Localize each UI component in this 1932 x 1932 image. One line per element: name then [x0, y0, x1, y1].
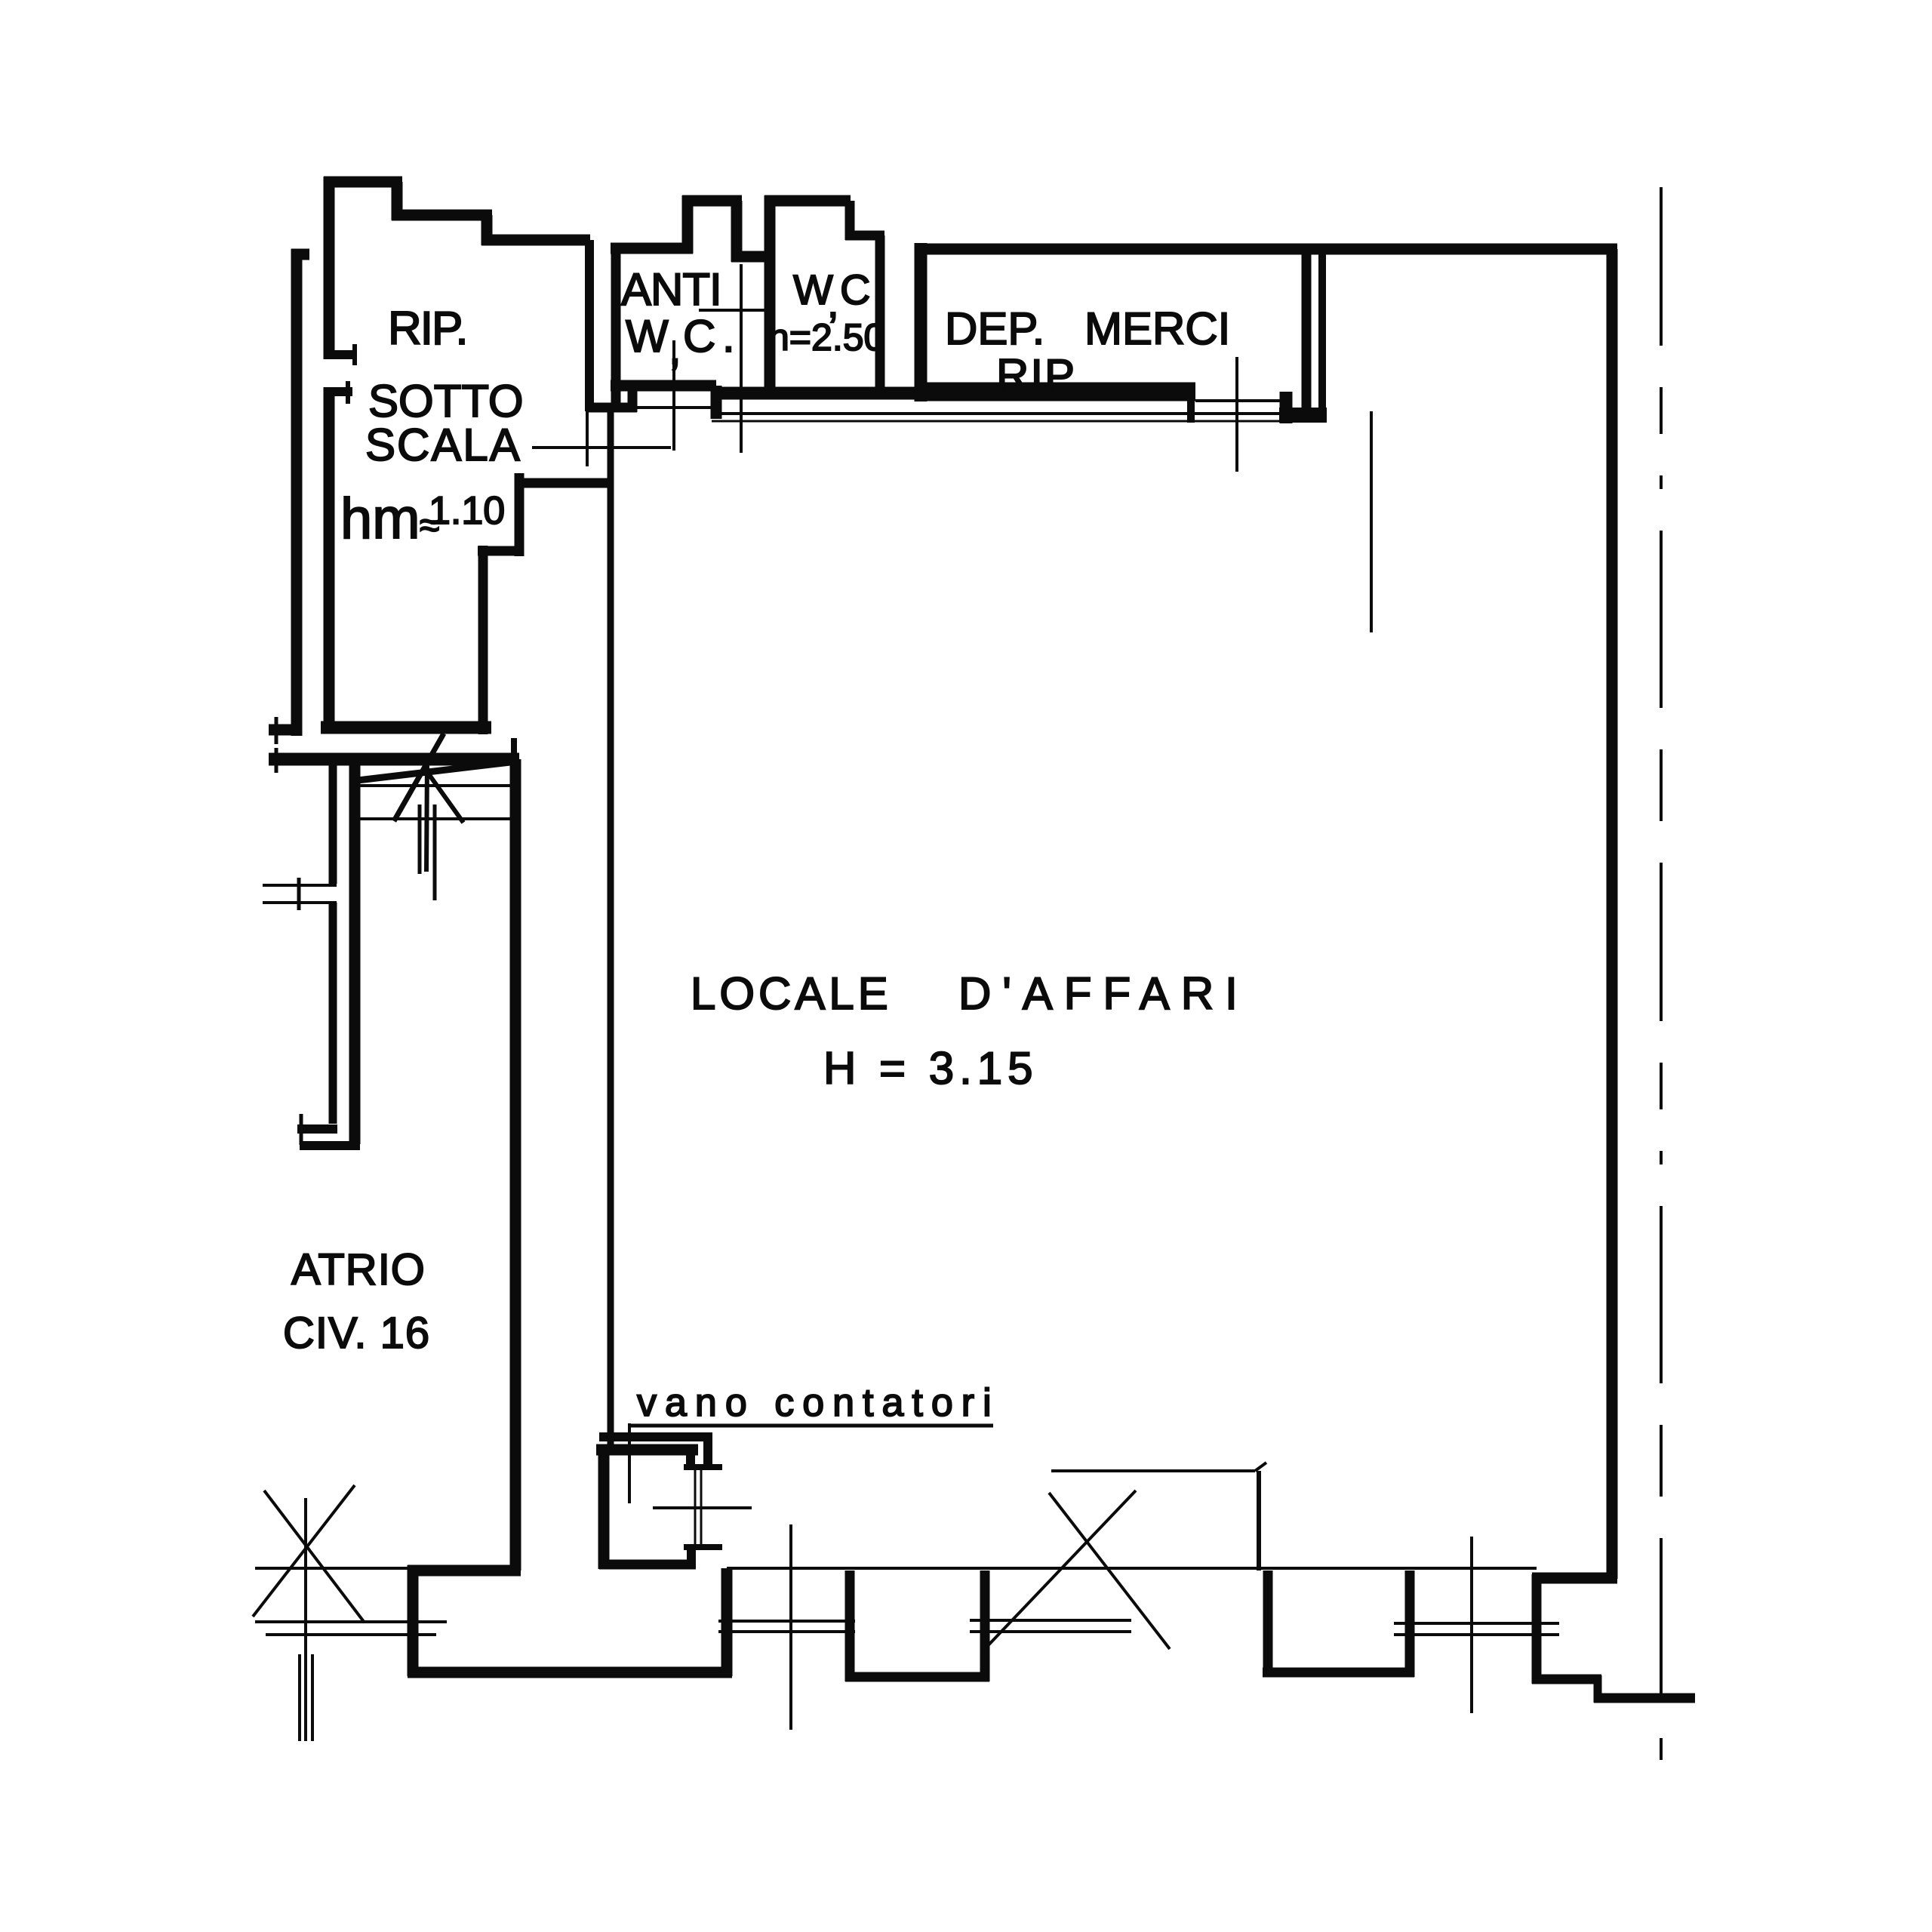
- svg-text:C: C: [683, 311, 715, 361]
- svg-text:1.10: 1.10: [429, 489, 505, 533]
- svg-text:MERCI: MERCI: [1084, 303, 1230, 354]
- svg-text:hm: hm: [340, 487, 420, 551]
- svg-text:D'AFFARI: D'AFFARI: [958, 968, 1249, 1019]
- svg-text:SCALA: SCALA: [365, 420, 521, 470]
- svg-text:RIP.: RIP.: [996, 350, 1084, 401]
- svg-text:vano contatori: vano contatori: [637, 1381, 1000, 1425]
- svg-text:C: C: [840, 266, 870, 313]
- svg-text:W: W: [626, 311, 669, 361]
- svg-text:ANTI: ANTI: [621, 264, 721, 315]
- svg-text:.: .: [722, 311, 735, 361]
- svg-text:h=2.50: h=2.50: [768, 316, 884, 358]
- svg-text:ATRIO: ATRIO: [291, 1245, 426, 1294]
- svg-text:DEP.: DEP.: [945, 303, 1044, 354]
- svg-text:,: ,: [669, 323, 681, 374]
- svg-text:H = 3.15: H = 3.15: [823, 1043, 1038, 1094]
- svg-text:LOCALE: LOCALE: [691, 968, 892, 1019]
- svg-text:RIP.: RIP.: [388, 303, 467, 355]
- svg-text:SOTTO: SOTTO: [368, 376, 524, 426]
- svg-text:CIV. 16: CIV. 16: [283, 1309, 430, 1358]
